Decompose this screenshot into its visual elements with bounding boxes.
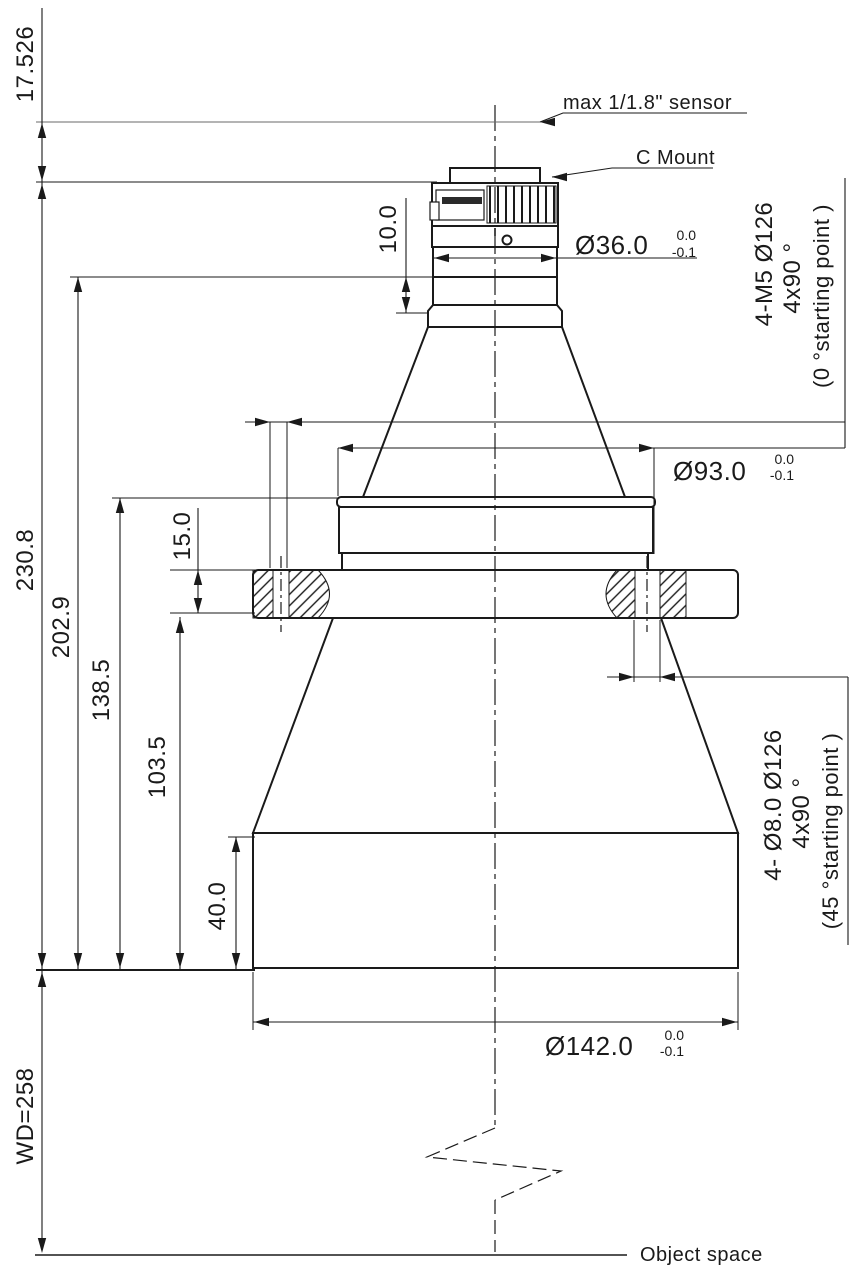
dia-36-label: Ø36.0 xyxy=(575,230,648,260)
dia-142-tol-upper: 0.0 xyxy=(665,1027,685,1043)
drawing-canvas: 17.526 230.8 202.9 138.5 103.5 15.0 40.0… xyxy=(0,0,856,1280)
working-distance-label: WD=258 xyxy=(12,1067,39,1164)
dim-40-0-label: 40.0 xyxy=(204,882,231,931)
m5-note-line3: (0 °starting point ) xyxy=(809,204,834,388)
ring-notch xyxy=(430,202,439,220)
m5-note-line1: 4-M5 Ø126 xyxy=(751,202,778,327)
label-bar xyxy=(442,197,482,204)
hatch-right-outer xyxy=(660,570,686,618)
sensor-label: max 1/1.8" sensor xyxy=(563,92,732,114)
dim-total-length-label: 230.8 xyxy=(12,529,39,592)
flange93-cap xyxy=(337,497,655,507)
dia-36-tol-upper: 0.0 xyxy=(677,227,697,243)
dia-36-tol-lower: -0.1 xyxy=(672,244,696,260)
set-screw xyxy=(503,236,512,245)
object-space-label: Object space xyxy=(640,1244,763,1266)
dim-15-0-label: 15.0 xyxy=(169,512,196,561)
dim-flange-focal-label: 17.526 xyxy=(12,26,39,102)
hatch-left-outer xyxy=(253,570,273,618)
c-mount-label: C Mount xyxy=(636,147,715,169)
sensor-leader xyxy=(540,113,747,122)
dim-103-5-label: 103.5 xyxy=(144,736,171,799)
label-window xyxy=(436,190,484,220)
knurl-ribs xyxy=(487,186,556,223)
dia-93-tol-lower: -0.1 xyxy=(770,467,794,483)
dia8-note-line1: 4- Ø8.0 Ø126 xyxy=(760,729,787,880)
break-zigzag xyxy=(427,1128,561,1200)
lens-technical-drawing: 17.526 230.8 202.9 138.5 103.5 15.0 40.0… xyxy=(0,0,856,1280)
hatch-left-inner xyxy=(289,570,330,618)
dia8-note-line3: (45 °starting point ) xyxy=(818,733,843,930)
flange93-cylinder xyxy=(339,507,653,553)
cmount-leader xyxy=(552,168,713,177)
dim-202-9-label: 202.9 xyxy=(48,596,75,659)
dia-142-label: Ø142.0 xyxy=(545,1031,633,1061)
upper-cone xyxy=(363,327,625,497)
dia-142-tol-lower: -0.1 xyxy=(660,1043,684,1059)
dia-93-label: Ø93.0 xyxy=(673,456,746,486)
dim-138-5-label: 138.5 xyxy=(88,659,115,722)
dia8-note-line2: 4x90 ° xyxy=(788,777,815,848)
dia-93-tol-upper: 0.0 xyxy=(775,451,795,467)
dim-10-0-label: 10.0 xyxy=(375,205,402,254)
m5-note-line2: 4x90 ° xyxy=(779,242,806,313)
